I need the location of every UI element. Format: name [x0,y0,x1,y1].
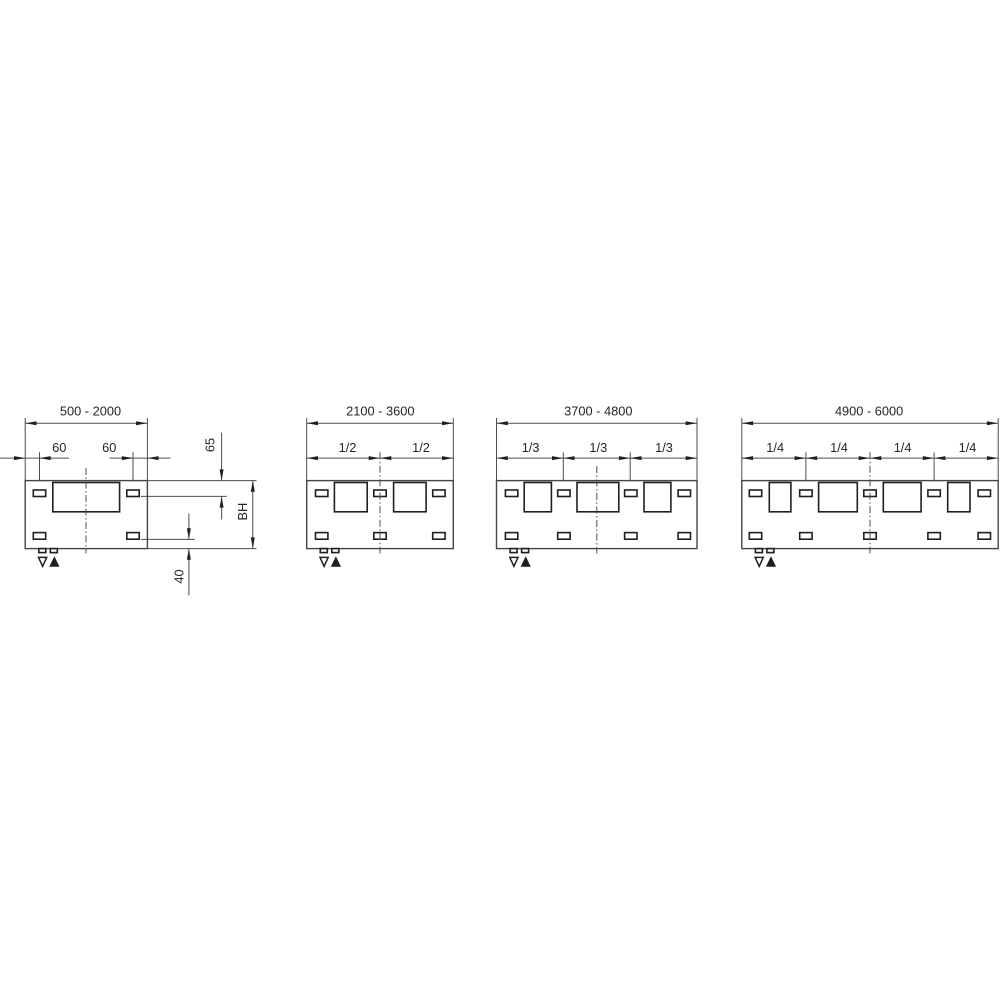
svg-text:1/2: 1/2 [339,440,357,455]
svg-text:1/4: 1/4 [830,440,848,455]
svg-text:4900 - 6000: 4900 - 6000 [835,404,903,419]
svg-text:65: 65 [202,438,217,452]
svg-text:60: 60 [52,440,66,455]
svg-text:40: 40 [171,569,186,583]
svg-text:1/4: 1/4 [766,440,784,455]
svg-text:2100 - 3600: 2100 - 3600 [346,404,414,419]
svg-text:3700 - 4800: 3700 - 4800 [564,404,632,419]
svg-text:1/4: 1/4 [959,440,977,455]
svg-text:60: 60 [102,440,116,455]
svg-text:1/4: 1/4 [894,440,912,455]
svg-text:1/3: 1/3 [655,440,673,455]
svg-text:BH: BH [235,503,250,521]
svg-text:1/3: 1/3 [589,440,607,455]
svg-text:500 - 2000: 500 - 2000 [60,404,121,419]
svg-text:1/2: 1/2 [412,440,430,455]
svg-text:1/3: 1/3 [522,440,540,455]
